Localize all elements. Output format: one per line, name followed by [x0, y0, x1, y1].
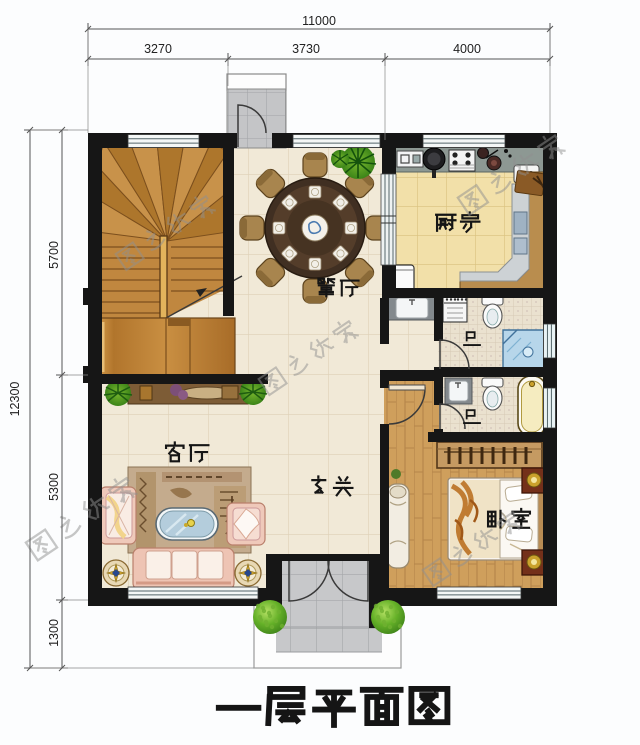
- svg-text:5700: 5700: [47, 241, 61, 269]
- svg-text:1300: 1300: [47, 619, 61, 647]
- svg-text:11000: 11000: [302, 14, 336, 28]
- svg-text:12300: 12300: [8, 382, 22, 417]
- svg-text:3730: 3730: [292, 42, 320, 56]
- svg-text:4000: 4000: [453, 42, 481, 56]
- svg-text:5300: 5300: [47, 473, 61, 501]
- svg-text:3270: 3270: [144, 42, 172, 56]
